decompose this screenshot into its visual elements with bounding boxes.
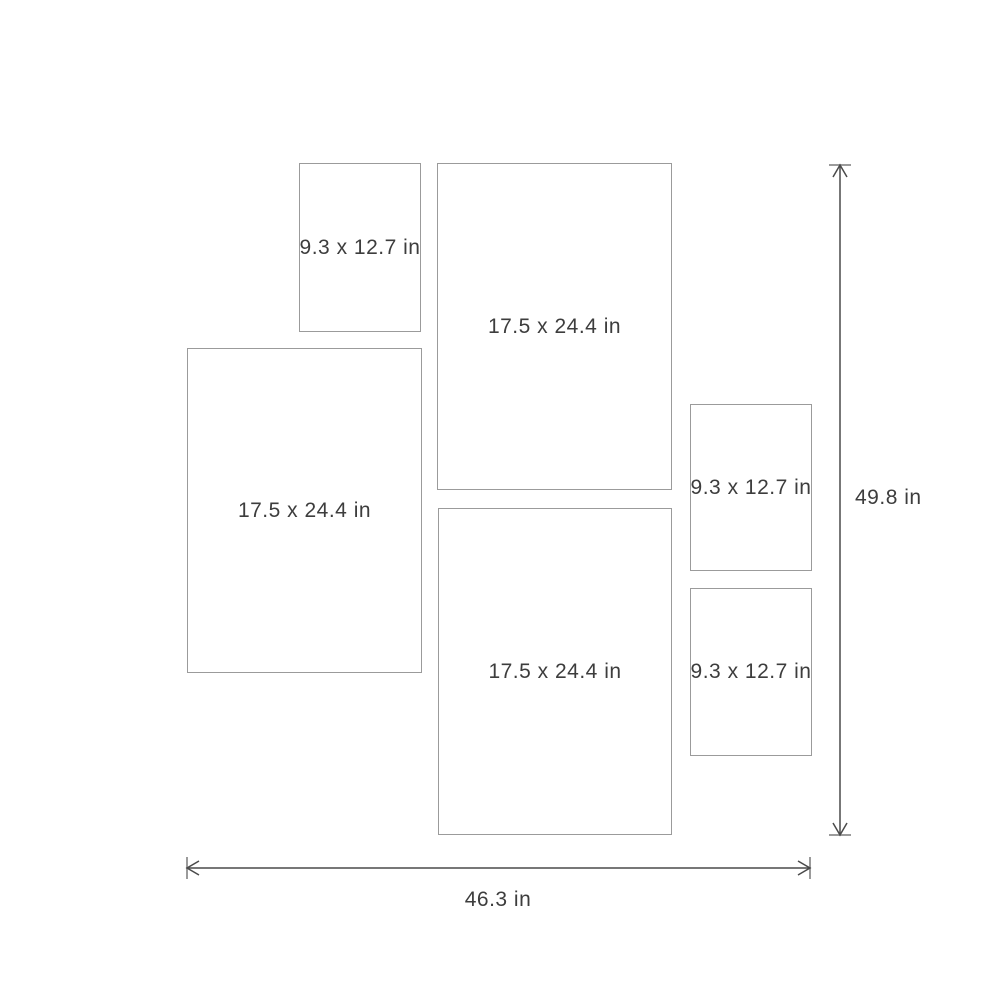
frame-size-label: 17.5 x 24.4 in — [488, 660, 621, 684]
frame-large-top-middle: 17.5 x 24.4 in — [437, 163, 672, 490]
frame-size-label: 9.3 x 12.7 in — [300, 236, 421, 260]
width-dimension-label: 46.3 in — [178, 888, 818, 912]
frame-small-right-upper: 9.3 x 12.7 in — [690, 404, 812, 571]
frame-size-label: 9.3 x 12.7 in — [691, 660, 812, 684]
frame-large-left: 17.5 x 24.4 in — [187, 348, 422, 673]
frame-size-label: 17.5 x 24.4 in — [488, 315, 621, 339]
frame-small-top: 9.3 x 12.7 in — [299, 163, 421, 332]
gallery-wall-size-diagram: 9.3 x 12.7 in 17.5 x 24.4 in 17.5 x 24.4… — [0, 0, 1000, 1000]
frame-small-right-lower: 9.3 x 12.7 in — [690, 588, 812, 756]
height-dimension-arrow-icon — [825, 160, 855, 840]
frame-large-bottom-middle: 17.5 x 24.4 in — [438, 508, 672, 835]
frame-size-label: 17.5 x 24.4 in — [238, 499, 371, 523]
height-dimension-label: 49.8 in — [855, 486, 922, 510]
frame-size-label: 9.3 x 12.7 in — [691, 476, 812, 500]
width-dimension-arrow-icon — [178, 853, 818, 883]
